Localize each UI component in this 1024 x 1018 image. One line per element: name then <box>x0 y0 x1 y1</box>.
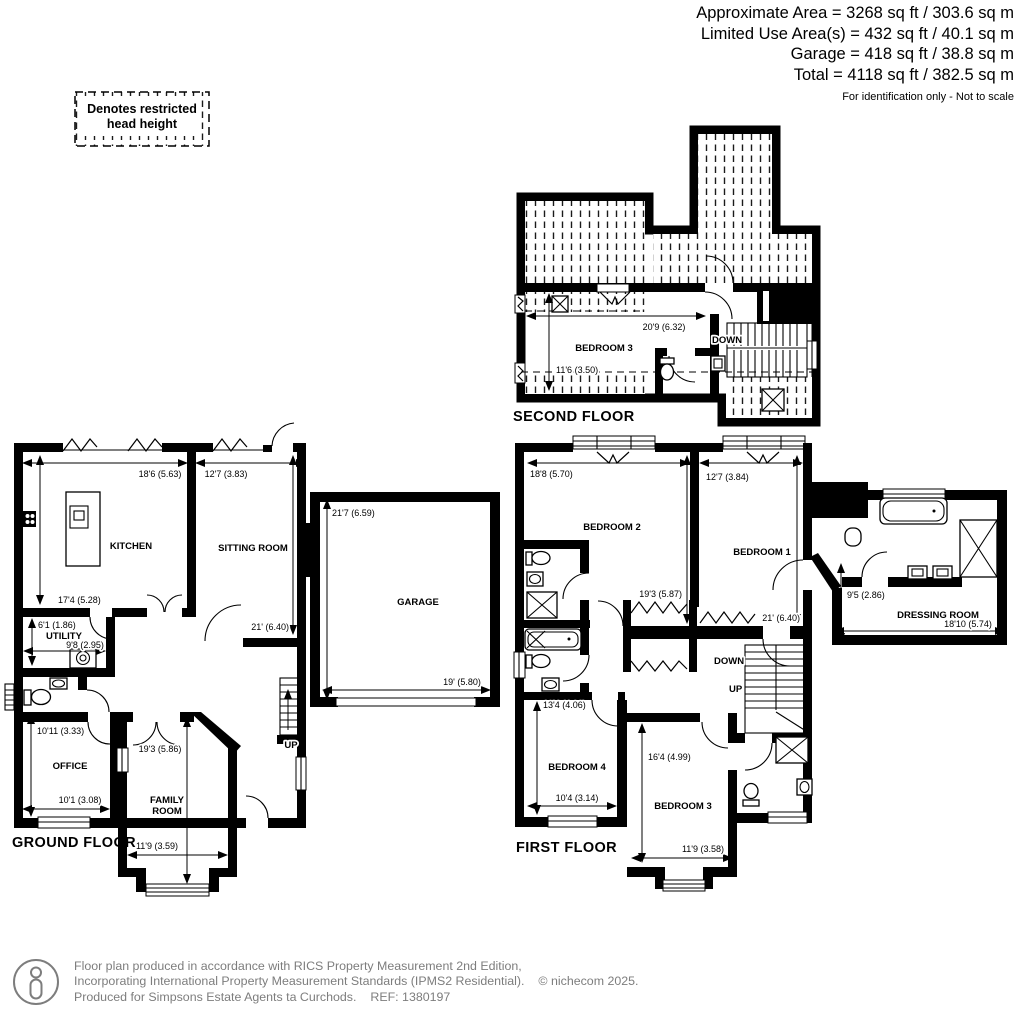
person-scale-icon <box>12 958 60 1006</box>
window-bedroom4 <box>548 816 597 827</box>
toilet-icon <box>660 358 674 380</box>
window-office <box>38 817 90 828</box>
dim-bedroom3-width: 20'9 (6.32) <box>643 322 686 332</box>
copyright: © nichecom 2025. <box>538 974 638 988</box>
sink-icon <box>711 356 725 371</box>
window-bathroom <box>768 812 807 823</box>
bay-window-bedroom3 <box>663 880 705 891</box>
dim-bedroom1-depth: 21' (6.40) <box>762 613 800 623</box>
window-zigzag <box>128 439 162 451</box>
door-arc <box>745 743 772 770</box>
dim-utility-depth: 6'1 (1.86) <box>38 620 76 630</box>
dim-bedroom2-depth: 19'3 (5.87) <box>639 589 682 599</box>
sink-icon <box>845 528 861 546</box>
window-zigzag <box>213 439 247 451</box>
restricted-head-height-legend: Denotes restricted head height <box>75 92 209 146</box>
sink-icon <box>797 779 812 795</box>
room-label-kitchen: KITCHEN <box>110 541 152 552</box>
toilet-icon <box>526 552 550 566</box>
window-right-wall <box>807 341 817 369</box>
wardrobe-zigzag <box>631 661 687 671</box>
floorplan-drawing: Denotes restricted head height <box>0 0 1024 1018</box>
door-arc <box>205 605 241 641</box>
room-label-sitting: SITTING ROOM <box>218 543 288 554</box>
shower-icon <box>960 520 997 577</box>
dim-bedroom3-ff-width: 11'9 (3.58) <box>682 844 724 854</box>
footer-line3: Produced for Simpsons Estate Agents ta C… <box>74 990 638 1006</box>
door-arc <box>246 796 268 818</box>
skylight-icon <box>762 389 784 411</box>
stairs-up-label-gf: UP <box>284 740 298 751</box>
garage-door <box>336 698 476 706</box>
dim-bedroom4-width: 10'4 (3.14) <box>556 793 599 803</box>
door-arc <box>563 655 589 681</box>
legend-text-2: head height <box>107 117 178 131</box>
ground-floor-plan: 18'6 (5.63) 12'7 (3.83) 17'4 (5.28) 21' … <box>5 423 500 896</box>
bay-window-bedroom2 <box>573 436 655 463</box>
door-arc <box>88 722 110 744</box>
dim-bedroom2-width: 18'8 (5.70) <box>530 469 573 479</box>
dim-kitchen-width: 18'6 (5.63) <box>139 469 182 479</box>
dim-dressing-depth: 9'5 (2.86) <box>847 590 885 600</box>
door-arc <box>87 690 109 712</box>
basin-icon <box>933 566 952 579</box>
door-arc <box>563 573 589 599</box>
second-floor-title: SECOND FLOOR <box>513 409 635 425</box>
shower-icon <box>776 737 808 763</box>
washing-machine-icon <box>70 649 96 668</box>
toilet-icon <box>743 784 759 807</box>
stairs-up-label-ff: UP <box>729 684 743 695</box>
door-arc <box>702 722 728 748</box>
sink-icon <box>527 572 543 586</box>
bay-window-bedroom1 <box>723 436 805 463</box>
sink-icon <box>542 678 559 691</box>
legend-text-1: Denotes restricted <box>87 102 197 116</box>
toilet-icon <box>526 655 550 669</box>
room-label-family-2: ROOM <box>152 806 182 817</box>
room-label-bedroom3-sf: BEDROOM 3 <box>575 343 633 354</box>
basin-icon <box>908 566 927 579</box>
room-label-bedroom1: BEDROOM 1 <box>733 547 791 558</box>
footer-line1: Floor plan produced in accordance with R… <box>74 959 638 975</box>
door-arc <box>157 722 180 745</box>
door-arc <box>133 722 156 745</box>
room-label-dressing: DRESSING ROOM <box>897 610 979 621</box>
stairs-down-label-sf: DOWN <box>712 335 742 346</box>
room-label-garage: GARAGE <box>397 597 439 608</box>
room-label-family-1: FAMILY <box>150 795 185 806</box>
door-arc <box>147 595 164 612</box>
stairs-down-label-ff: DOWN <box>714 656 744 667</box>
sink-icon <box>50 678 67 689</box>
window-family-left <box>117 748 128 772</box>
bath-icon <box>525 629 581 650</box>
staircase-up-down <box>745 645 808 733</box>
first-floor-title: FIRST FLOOR <box>516 840 617 856</box>
first-floor-plan: 9'5 (2.86) 18'10 (5.74) DRESSING ROOM 18… <box>514 436 1007 891</box>
room-label-office: OFFICE <box>53 761 88 772</box>
window-left-wall <box>514 652 525 678</box>
room-label-bedroom2: BEDROOM 2 <box>583 522 641 533</box>
bath-icon <box>880 498 947 524</box>
window-right-wall <box>296 757 306 790</box>
dim-bedroom1-width: 12'7 (3.84) <box>706 472 749 482</box>
window-zigzag <box>63 439 97 451</box>
dim-garage-width: 19' (5.80) <box>443 677 481 687</box>
kitchen-island <box>66 492 100 566</box>
radiator-icon <box>5 684 14 710</box>
door-arc <box>773 560 803 590</box>
door-arc <box>598 601 623 626</box>
footer: Floor plan produced in accordance with R… <box>12 958 638 1006</box>
wardrobe-zigzag <box>631 602 687 613</box>
dim-family-depth: 19'3 (5.86) <box>139 744 182 754</box>
footer-text: Floor plan produced in accordance with R… <box>74 959 638 1006</box>
door-arc <box>272 423 294 446</box>
dim-garage-depth: 21'7 (6.59) <box>332 508 375 518</box>
diagonal-wall <box>810 553 841 592</box>
door-arc <box>165 595 182 612</box>
room-label-bedroom3-ff: BEDROOM 3 <box>654 801 712 812</box>
shower-icon <box>527 592 557 618</box>
ground-floor-title: GROUND FLOOR <box>12 835 136 851</box>
room-label-bedroom4: BEDROOM 4 <box>548 762 606 773</box>
second-floor-plan: 20'9 (6.32) 11'6 (3.50) BEDROOM 3 DOWN S… <box>513 130 817 425</box>
dim-family-width: 11'9 (3.59) <box>136 841 178 851</box>
bay-window-family <box>146 884 209 896</box>
door-arc <box>862 552 887 577</box>
room-label-utility: UTILITY <box>46 631 83 642</box>
footer-line2: Incorporating International Property Mea… <box>74 974 638 990</box>
wardrobe-zigzag <box>700 612 755 623</box>
dim-bedroom3-ff-depth: 16'4 (4.99) <box>648 752 691 762</box>
reference-number: REF: 1380197 <box>370 990 450 1004</box>
dim-sitting-width: 12'7 (3.83) <box>205 469 248 479</box>
skylight-icon <box>552 296 568 312</box>
dim-bedroom3-depth: 11'6 (3.50) <box>556 365 598 375</box>
hob-icon <box>23 511 36 527</box>
dim-sitting-depth: 21' (6.40) <box>251 622 289 632</box>
toilet-icon <box>24 690 51 706</box>
dim-bedroom4-depth: 13'4 (4.06) <box>543 700 586 710</box>
dim-office-width: 10'1 (3.08) <box>59 795 102 805</box>
dim-office-depth: 10'11 (3.33) <box>37 726 84 736</box>
dim-kitchen-depth: 17'4 (5.28) <box>58 595 101 605</box>
door-arc <box>592 700 618 726</box>
garage: 21'7 (6.59) 19' (5.80) GARAGE <box>310 492 500 707</box>
